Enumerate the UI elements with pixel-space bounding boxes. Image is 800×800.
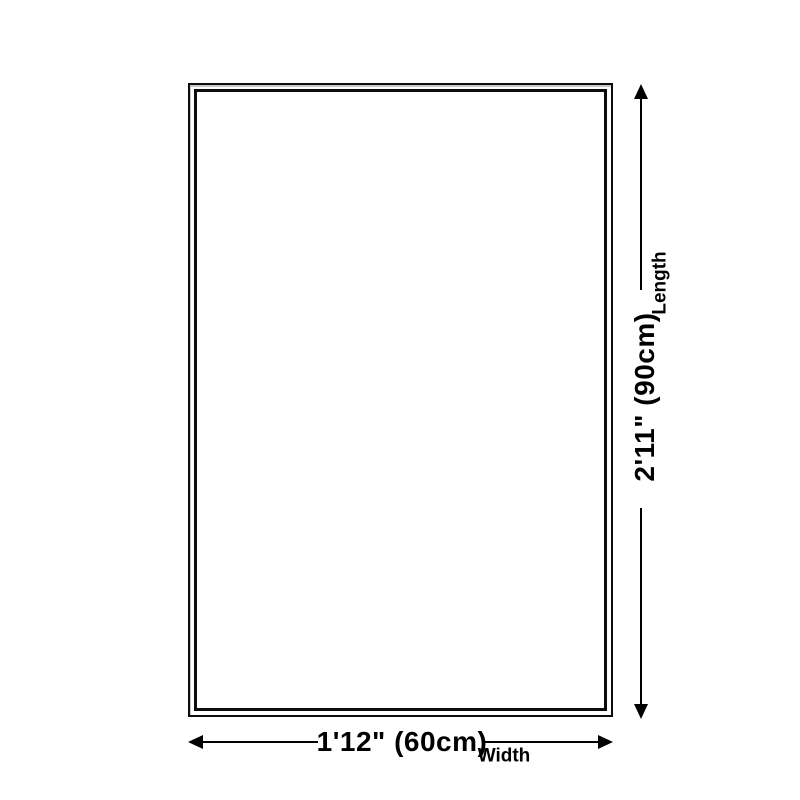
arrow-down-icon — [634, 704, 648, 719]
length-dimension-line-upper — [640, 96, 642, 290]
length-value-label: 2'11" (90cm) — [631, 312, 659, 481]
length-dimension-line-lower — [640, 508, 642, 704]
arrow-right-icon — [598, 735, 613, 749]
width-dimension-line-right — [482, 741, 599, 743]
width-axis-label: Width — [478, 747, 531, 766]
width-dimension-line-left — [201, 741, 318, 743]
product-outline-outer — [188, 83, 613, 717]
dimension-diagram: Length 2'11" (90cm) 1'12" (60cm) Width — [0, 0, 800, 800]
product-outline-inner — [194, 89, 607, 711]
width-value-label: 1'12" (60cm) — [317, 728, 488, 756]
length-axis-label: Length — [651, 251, 670, 314]
